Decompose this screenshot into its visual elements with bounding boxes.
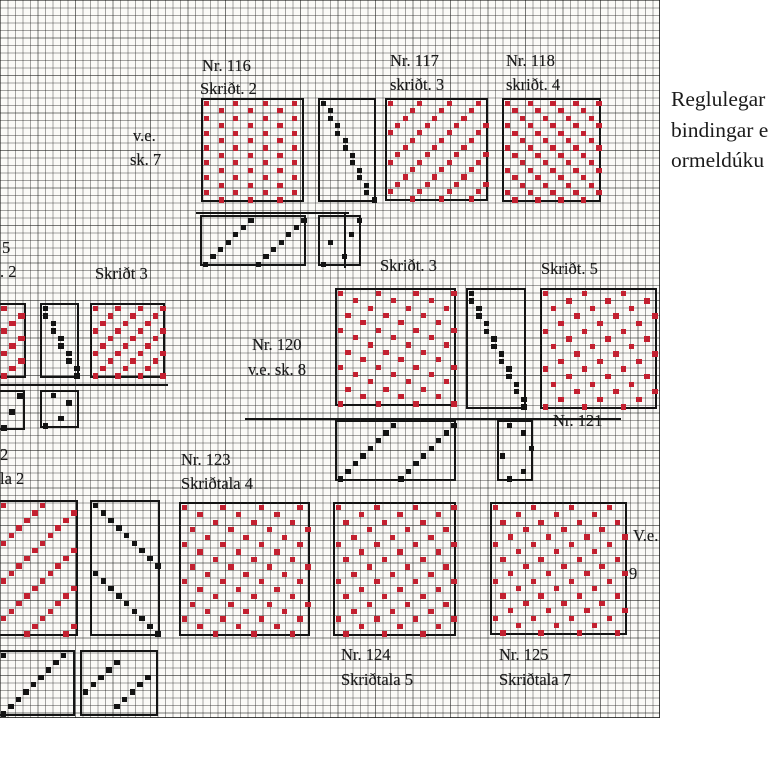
red-cell [592, 586, 597, 591]
red-cell [573, 168, 578, 173]
red-cell [190, 527, 196, 532]
black-cell [436, 438, 441, 443]
red-cell [259, 579, 265, 584]
red-cell [397, 587, 402, 592]
red-cell [432, 174, 437, 179]
red-cell [443, 602, 448, 607]
black-cell [108, 518, 114, 523]
red-cell [32, 624, 38, 629]
margin-note-line-1: Reglulegar [671, 84, 768, 115]
black-cell [514, 389, 519, 394]
black-cell [271, 247, 276, 252]
red-cell [476, 101, 481, 106]
red-cell [9, 366, 15, 371]
red-cell [629, 306, 635, 311]
red-cell [592, 623, 597, 628]
black-cell [145, 675, 151, 680]
red-cell [359, 624, 364, 629]
black-cell [51, 393, 57, 398]
red-cell [18, 358, 24, 363]
red-cell [528, 123, 533, 128]
red-cell [589, 183, 594, 188]
red-cell [558, 108, 563, 113]
red-cell [493, 542, 498, 547]
block-label: Nr. 118 [506, 52, 555, 70]
red-cell [436, 357, 441, 362]
red-cell [451, 616, 456, 621]
red-cell [93, 373, 98, 378]
black-cell [357, 175, 362, 180]
red-cell [351, 609, 356, 614]
red-cell [71, 548, 77, 553]
red-cell [523, 564, 528, 569]
red-cell [554, 586, 559, 591]
red-cell [413, 291, 418, 296]
red-cell [390, 609, 395, 614]
red-cell [520, 138, 525, 143]
red-cell [228, 602, 234, 607]
red-cell [359, 549, 364, 554]
red-cell [535, 131, 540, 136]
red-cell [32, 510, 38, 515]
red-cell [9, 533, 15, 538]
red-cell [290, 520, 296, 525]
red-cell [197, 512, 203, 517]
red-cell [219, 138, 224, 143]
red-cell [550, 145, 555, 150]
pattern-block-nr124-motif [333, 502, 456, 636]
red-cell [629, 382, 635, 387]
red-cell [71, 586, 77, 591]
pattern-block-nr122-motif-cut [0, 500, 78, 636]
red-cell [205, 609, 211, 614]
black-cell [51, 328, 57, 333]
red-cell [376, 291, 381, 296]
red-cell [543, 160, 548, 165]
red-cell [531, 505, 536, 510]
graph-paper-grid: Nr. 116Skriðt. 2Nr. 117skriðt. 3Nr. 118s… [0, 0, 660, 718]
black-cell [23, 689, 28, 694]
red-cell [383, 350, 388, 355]
block-label: la 2 [0, 470, 24, 488]
red-cell [421, 350, 426, 355]
red-cell [550, 190, 555, 195]
red-cell [538, 557, 543, 562]
red-cell [476, 160, 481, 165]
black-cell [342, 254, 347, 259]
block-label: V.e. [633, 527, 658, 545]
red-cell [520, 116, 525, 121]
red-cell [259, 505, 265, 510]
red-cell [421, 313, 426, 318]
black-cell [132, 609, 138, 614]
black-cell [451, 423, 456, 428]
block-label: Skriðtala 7 [499, 671, 571, 689]
red-cell [397, 512, 402, 517]
red-cell [123, 321, 128, 326]
red-cell [652, 351, 658, 356]
red-cell [248, 183, 253, 188]
red-cell [233, 145, 238, 150]
red-cell [493, 505, 498, 510]
red-cell [483, 123, 488, 128]
red-cell [561, 527, 566, 532]
red-cell [24, 556, 30, 561]
red-cell [182, 579, 188, 584]
red-cell [420, 631, 425, 636]
red-cell [9, 343, 15, 348]
red-cell [138, 351, 143, 356]
red-cell [439, 108, 444, 113]
red-cell [213, 594, 219, 599]
red-cell [145, 321, 150, 326]
red-cell [558, 131, 563, 136]
red-cell [338, 365, 343, 370]
red-cell [16, 525, 22, 530]
red-cell [297, 542, 303, 547]
black-cell [263, 254, 268, 259]
black-cell [507, 423, 512, 428]
red-cell [383, 387, 388, 392]
red-cell [297, 616, 303, 621]
red-cell [197, 587, 203, 592]
red-cell [274, 587, 280, 592]
black-cell [124, 533, 130, 538]
red-cell [566, 160, 571, 165]
red-cell [398, 394, 403, 399]
red-cell [18, 313, 24, 318]
red-cell [338, 401, 343, 406]
black-cell [328, 116, 333, 121]
black-cell [58, 336, 64, 341]
block-label: 2 [0, 446, 8, 464]
red-cell [607, 542, 612, 547]
red-cell [582, 366, 588, 371]
black-cell [203, 262, 208, 267]
red-cell [615, 630, 620, 635]
black-cell [398, 476, 403, 481]
red-cell [267, 602, 273, 607]
red-cell [277, 168, 282, 173]
pattern-block-nr122-tieup [80, 650, 158, 716]
red-cell [55, 601, 61, 606]
pattern-block-nr122-threading [0, 650, 75, 716]
red-cell [376, 365, 381, 370]
red-cell [55, 525, 61, 530]
red-cell [305, 602, 311, 607]
black-cell [350, 153, 355, 158]
red-cell [100, 321, 105, 326]
red-cell [551, 344, 557, 349]
red-cell [543, 291, 549, 296]
red-cell [1, 616, 7, 621]
red-cell [359, 587, 364, 592]
red-cell [443, 527, 448, 532]
red-cell [613, 351, 619, 356]
red-cell [338, 328, 343, 333]
red-cell [543, 404, 549, 409]
red-cell [388, 130, 393, 135]
red-cell [282, 572, 288, 577]
red-cell [508, 571, 513, 576]
black-cell [51, 321, 57, 326]
red-cell [259, 616, 265, 621]
black-cell [476, 306, 481, 311]
red-cell [566, 138, 571, 143]
red-cell [469, 108, 474, 113]
red-cell [461, 174, 466, 179]
block-label: Skriðt 3 [95, 265, 148, 283]
black-cell [132, 541, 138, 546]
red-cell [263, 101, 268, 106]
black-cell [46, 667, 51, 672]
red-cell [447, 189, 452, 194]
red-cell [391, 298, 396, 303]
black-cell [61, 653, 66, 658]
black-cell [116, 525, 122, 530]
red-cell [345, 350, 350, 355]
red-cell [368, 342, 373, 347]
red-cell [182, 505, 188, 510]
red-cell [274, 624, 280, 629]
red-cell [353, 335, 358, 340]
red-cell [405, 564, 410, 569]
red-cell [597, 321, 603, 326]
red-cell [115, 351, 120, 356]
red-cell [607, 579, 612, 584]
black-cell [130, 689, 136, 694]
red-cell [582, 329, 588, 334]
red-cell [516, 623, 521, 628]
red-cell [493, 579, 498, 584]
red-cell [512, 175, 517, 180]
black-cell [116, 593, 122, 598]
black-cell [335, 131, 340, 136]
red-cell [353, 298, 358, 303]
red-cell [63, 631, 69, 636]
block-label: Nr. 117 [390, 52, 439, 70]
red-cell [204, 116, 209, 121]
black-cell [279, 240, 284, 245]
red-cell [592, 549, 597, 554]
red-cell [613, 313, 619, 318]
red-cell [516, 549, 521, 554]
black-cell [124, 601, 130, 606]
red-cell [554, 512, 559, 517]
red-cell [336, 579, 341, 584]
pattern-block-nr120-threading [335, 420, 456, 481]
red-cell [219, 197, 224, 202]
red-cell [476, 189, 481, 194]
red-cell [368, 379, 373, 384]
pattern-block-nr117-motif [385, 98, 488, 201]
red-cell [277, 123, 282, 128]
pattern-block-nr119-tieup [40, 390, 79, 428]
red-cell [391, 372, 396, 377]
red-cell [391, 335, 396, 340]
red-cell [425, 152, 430, 157]
red-cell [599, 527, 604, 532]
red-cell [543, 366, 549, 371]
red-cell [336, 542, 341, 547]
red-cell [297, 505, 303, 510]
red-cell [439, 138, 444, 143]
block-label: Nr. 116 [202, 57, 251, 75]
red-cell [1, 351, 7, 356]
red-cell [535, 175, 540, 180]
red-cell [190, 564, 196, 569]
red-cell [436, 549, 441, 554]
red-cell [531, 579, 536, 584]
black-cell [368, 446, 373, 451]
red-cell [55, 563, 61, 568]
red-cell [248, 153, 253, 158]
red-cell [505, 145, 510, 150]
black-cell [241, 225, 246, 230]
black-cell [529, 446, 534, 451]
red-cell [274, 512, 280, 517]
red-cell [145, 343, 150, 348]
red-cell [413, 401, 418, 406]
red-cell [535, 197, 540, 202]
red-cell [251, 520, 257, 525]
red-cell [505, 190, 510, 195]
red-cell [153, 313, 158, 318]
block-label: skriðt. 4 [506, 76, 560, 94]
red-cell [558, 397, 564, 402]
red-cell [451, 365, 456, 370]
red-cell [388, 189, 393, 194]
red-cell [233, 160, 238, 165]
black-cell [350, 160, 355, 165]
red-cell [439, 167, 444, 172]
red-cell [243, 535, 249, 540]
margin-note: Reglulegar bindingar e ormeldúku [671, 84, 768, 176]
red-cell [520, 160, 525, 165]
black-cell [328, 108, 333, 113]
red-cell [451, 505, 456, 510]
black-cell [9, 409, 15, 415]
red-cell [558, 197, 563, 202]
red-cell [197, 549, 203, 554]
red-cell [569, 505, 574, 510]
red-cell [417, 101, 422, 106]
black-cell [155, 563, 161, 568]
black-cell [16, 697, 21, 702]
red-cell [454, 152, 459, 157]
black-cell [147, 556, 153, 561]
red-cell [476, 130, 481, 135]
black-cell [66, 358, 72, 363]
red-cell [573, 145, 578, 150]
red-cell [622, 608, 627, 613]
red-cell [535, 108, 540, 113]
red-cell [607, 616, 612, 621]
red-cell [360, 357, 365, 362]
black-cell [38, 675, 43, 680]
red-cell [436, 587, 441, 592]
black-cell [338, 476, 343, 481]
red-cell [538, 630, 543, 635]
red-cell [367, 527, 372, 532]
red-cell [454, 123, 459, 128]
black-cell [476, 313, 481, 318]
black-cell [114, 660, 120, 665]
red-cell [160, 328, 165, 333]
red-cell [469, 196, 474, 201]
red-cell [406, 306, 411, 311]
red-cell [599, 564, 604, 569]
red-cell [566, 298, 572, 303]
red-cell [454, 182, 459, 187]
red-cell [100, 366, 105, 371]
red-cell [417, 130, 422, 135]
red-cell [429, 372, 434, 377]
separator-line-1 [196, 212, 349, 214]
red-cell [205, 572, 211, 577]
red-cell [569, 579, 574, 584]
red-cell [292, 116, 297, 121]
red-cell [469, 167, 474, 172]
red-cell [589, 116, 594, 121]
red-cell [16, 563, 22, 568]
red-cell [277, 197, 282, 202]
black-cell [376, 438, 381, 443]
red-cell [219, 168, 224, 173]
red-cell [233, 116, 238, 121]
red-cell [420, 557, 425, 562]
pattern-block-nr120-motif [335, 288, 456, 406]
red-cell [40, 616, 46, 621]
red-cell [233, 101, 238, 106]
black-cell [444, 430, 449, 435]
black-cell [286, 232, 291, 237]
pattern-block-nr116-motif [201, 98, 304, 202]
red-cell [292, 145, 297, 150]
black-cell [500, 453, 505, 458]
red-cell [469, 138, 474, 143]
red-cell [395, 182, 400, 187]
red-cell [429, 298, 434, 303]
red-cell [512, 131, 517, 136]
red-cell [1, 578, 7, 583]
black-cell [406, 469, 411, 474]
black-cell [74, 373, 80, 378]
black-cell [8, 704, 13, 709]
red-cell [382, 594, 387, 599]
red-cell [420, 520, 425, 525]
red-cell [512, 153, 517, 158]
red-cell [219, 183, 224, 188]
red-cell [248, 108, 253, 113]
black-cell [139, 548, 145, 553]
red-cell [40, 578, 46, 583]
red-cell [343, 557, 348, 562]
block-label: v.e. sk. 8 [248, 361, 306, 379]
black-cell [429, 446, 434, 451]
red-cell [447, 130, 452, 135]
pattern-block-skridt3-motif [90, 303, 165, 378]
red-cell [605, 336, 611, 341]
red-cell [558, 321, 564, 326]
red-cell [597, 359, 603, 364]
black-cell [114, 704, 120, 709]
red-cell [546, 571, 551, 576]
red-cell [636, 359, 642, 364]
red-cell [248, 197, 253, 202]
red-cell [577, 520, 582, 525]
black-cell [345, 469, 350, 474]
